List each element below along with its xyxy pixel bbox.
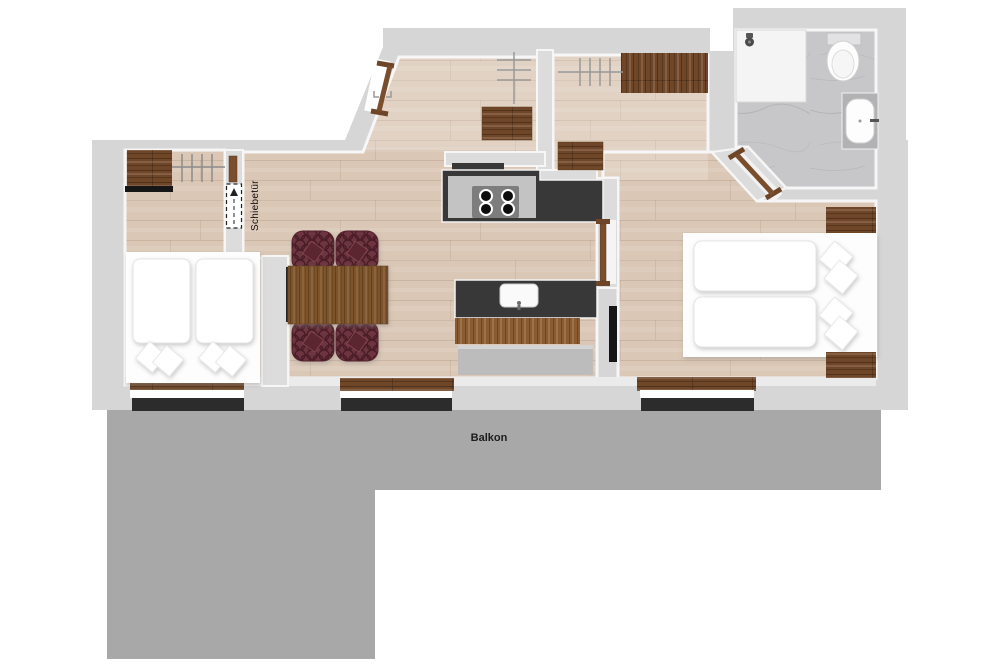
kitchen-island xyxy=(455,280,597,375)
window-glass xyxy=(341,398,452,411)
mattress xyxy=(133,259,190,343)
window-right xyxy=(637,377,756,411)
window-frame xyxy=(640,390,754,398)
burner xyxy=(480,203,492,215)
tv-screen-icon xyxy=(609,306,617,362)
faucet xyxy=(870,119,879,122)
door-jamb xyxy=(596,281,610,286)
drain xyxy=(859,120,862,123)
stone-bench xyxy=(458,345,593,375)
shower-head-icon xyxy=(745,33,754,47)
door-jamb xyxy=(377,63,394,66)
balcony: Balkon xyxy=(107,410,881,659)
floorplan-canvas: Balkon xyxy=(0,0,1000,666)
wall-pier-3 xyxy=(756,386,878,410)
window-frame xyxy=(340,391,452,398)
wardrobe xyxy=(621,53,708,93)
door-jamb xyxy=(596,219,610,224)
wardrobe-shadow xyxy=(125,186,173,192)
nightstand xyxy=(826,207,876,233)
window-frame xyxy=(130,390,244,398)
sink-drain xyxy=(517,301,521,305)
dining-area xyxy=(286,231,388,361)
balcony-deck xyxy=(107,410,881,659)
sliding-door-leaf xyxy=(229,156,237,182)
toilet-icon xyxy=(827,33,861,81)
nightstand xyxy=(826,352,876,378)
door-leaf-icon xyxy=(600,224,606,281)
sliding-door-label: Schiebetür xyxy=(250,180,261,231)
floorplan-page: Balkon xyxy=(0,0,1000,666)
mattress xyxy=(694,241,816,291)
burner xyxy=(480,190,492,202)
wall-bedroom-living xyxy=(262,256,288,386)
wardrobe xyxy=(127,150,172,188)
desk xyxy=(558,142,603,170)
door-jamb xyxy=(371,111,388,114)
washbasin-icon xyxy=(842,93,879,149)
window-middle xyxy=(340,378,454,411)
burner xyxy=(502,203,514,215)
window-glass xyxy=(641,398,754,411)
sink-faucet xyxy=(518,305,521,310)
balcony-label: Balkon xyxy=(471,432,508,444)
mattress xyxy=(196,259,253,343)
dining-table xyxy=(288,266,388,324)
desk xyxy=(482,107,532,140)
island-front xyxy=(455,318,580,344)
wall-pier-1 xyxy=(244,386,340,410)
wall-pier-2 xyxy=(452,386,641,410)
window-sill xyxy=(340,378,454,391)
mattress xyxy=(694,297,816,347)
window-glass xyxy=(132,398,244,411)
window-sill xyxy=(637,377,756,391)
bench-highlight xyxy=(458,345,593,349)
burner xyxy=(502,190,514,202)
